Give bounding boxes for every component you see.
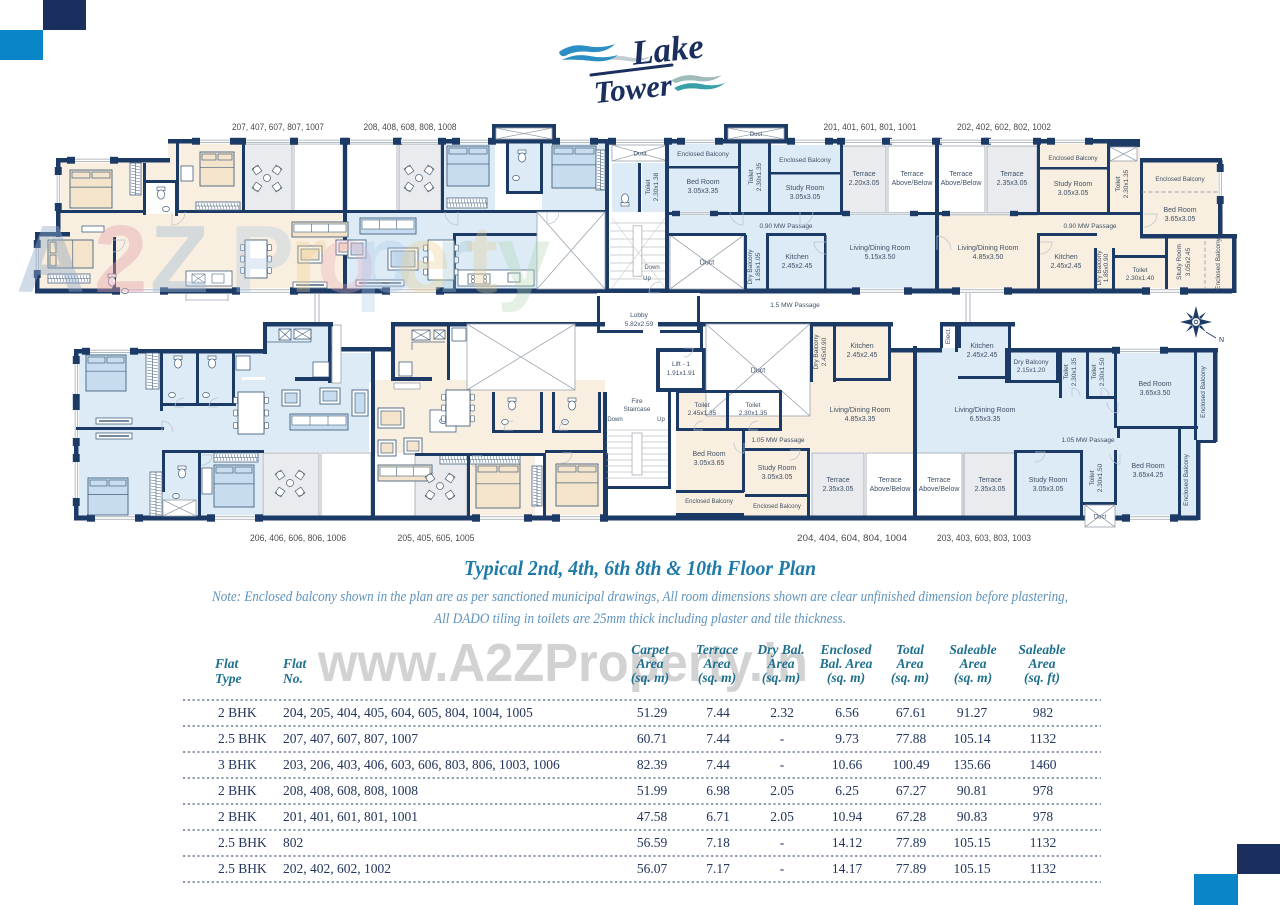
svg-text:6.55x3.35: 6.55x3.35	[970, 416, 1001, 423]
svg-text:Terrace: Terrace	[927, 477, 950, 484]
svg-text:Bed Room: Bed Room	[1138, 381, 1171, 388]
svg-text:(sq. m): (sq. m)	[891, 670, 929, 685]
svg-text:3 BHK: 3 BHK	[218, 757, 257, 772]
svg-text:Down: Down	[644, 265, 659, 271]
svg-text:-: -	[780, 731, 785, 746]
svg-text:Study Room: Study Room	[1029, 477, 1068, 484]
svg-text:Kitchen: Kitchen	[970, 343, 993, 350]
svg-text:Terrace: Terrace	[1000, 171, 1023, 178]
svg-text:Total: Total	[896, 642, 924, 657]
svg-text:Enclosed Balcony: Enclosed Balcony	[1048, 155, 1098, 162]
svg-text:Living/Dining Room: Living/Dining Room	[830, 407, 891, 414]
svg-text:Enclosed Balcony: Enclosed Balcony	[753, 504, 801, 510]
svg-text:-: -	[780, 835, 785, 850]
svg-text:105.14: 105.14	[953, 731, 990, 746]
svg-text:3.05x3.65: 3.05x3.65	[694, 460, 725, 467]
svg-text:Enclosed Balcony: Enclosed Balcony	[779, 157, 831, 164]
svg-text:Typical 2nd, 4th, 6th 8th & 10: Typical 2nd, 4th, 6th 8th & 10th Floor P…	[464, 556, 816, 580]
svg-text:10.66: 10.66	[832, 757, 863, 772]
svg-text:(sq. m): (sq. m)	[827, 670, 865, 685]
svg-text:2 BHK: 2 BHK	[218, 809, 257, 824]
svg-text:Enclosed Balcony: Enclosed Balcony	[1215, 237, 1222, 289]
svg-text:No.: No.	[282, 671, 303, 686]
svg-text:3.65x3.05: 3.65x3.05	[1165, 216, 1196, 223]
svg-text:Above/Below: Above/Below	[919, 486, 961, 493]
svg-text:6.56: 6.56	[835, 705, 859, 720]
svg-text:Toilet: Toilet	[1115, 176, 1122, 191]
svg-text:Bed Room: Bed Room	[692, 451, 725, 458]
svg-text:Tower: Tower	[592, 67, 674, 110]
svg-text:Toilet: Toilet	[745, 402, 760, 409]
svg-text:2.30x1.35: 2.30x1.35	[1123, 169, 1130, 198]
svg-text:2.35x3.05: 2.35x3.05	[997, 180, 1028, 187]
svg-text:2.45x0.90: 2.45x0.90	[821, 337, 828, 366]
svg-text:105.15: 105.15	[953, 835, 990, 850]
svg-text:Enclosed Balcony: Enclosed Balcony	[1183, 453, 1190, 505]
svg-text:82.39: 82.39	[637, 757, 668, 772]
svg-text:Above/Below: Above/Below	[870, 486, 912, 493]
svg-text:Down: Down	[607, 417, 622, 423]
svg-text:4.85x3.35: 4.85x3.35	[845, 416, 876, 423]
svg-text:7.44: 7.44	[706, 705, 730, 720]
svg-text:Lobby: Lobby	[630, 312, 648, 319]
svg-text:47.58: 47.58	[637, 809, 668, 824]
svg-text:Terrace: Terrace	[978, 477, 1001, 484]
svg-text:2.05: 2.05	[770, 783, 794, 798]
svg-text:Duct: Duct	[633, 151, 647, 158]
svg-text:978: 978	[1033, 809, 1054, 824]
svg-text:3.65x4.25: 3.65x4.25	[1133, 472, 1164, 479]
svg-text:Staircase: Staircase	[623, 406, 650, 413]
svg-text:6.25: 6.25	[835, 783, 859, 798]
svg-text:2.05: 2.05	[770, 809, 794, 824]
svg-text:Toilet: Toilet	[645, 179, 652, 194]
svg-text:3.05x3.35: 3.05x3.35	[688, 188, 719, 195]
svg-text:207, 407, 607, 807, 1007: 207, 407, 607, 807, 1007	[232, 122, 324, 132]
svg-text:2.30x1.35: 2.30x1.35	[756, 162, 763, 191]
svg-text:202, 402, 602, 802, 1002: 202, 402, 602, 802, 1002	[957, 122, 1051, 132]
svg-text:Terrace: Terrace	[878, 477, 901, 484]
svg-text:3.05x3.05: 3.05x3.05	[790, 194, 821, 201]
svg-text:7.44: 7.44	[706, 731, 730, 746]
svg-text:Terrace: Terrace	[949, 171, 972, 178]
svg-text:51.29: 51.29	[637, 705, 668, 720]
svg-text:6.98: 6.98	[706, 783, 730, 798]
svg-text:1.05 MW Passage: 1.05 MW Passage	[751, 437, 804, 444]
svg-text:0.90 MW Passage: 0.90 MW Passage	[1063, 223, 1116, 230]
svg-text:Kitchen: Kitchen	[785, 254, 808, 261]
svg-text:Study Room: Study Room	[786, 185, 825, 192]
svg-text:2.5 BHK: 2.5 BHK	[218, 835, 267, 850]
svg-text:Duct: Duct	[700, 260, 714, 267]
svg-text:105.15: 105.15	[953, 861, 990, 876]
svg-text:1.91x1.91: 1.91x1.91	[667, 370, 696, 377]
svg-text:7.17: 7.17	[706, 861, 730, 876]
svg-text:Duct: Duct	[751, 368, 765, 375]
svg-text:Dry Balcony: Dry Balcony	[747, 249, 754, 285]
svg-text:7.44: 7.44	[706, 757, 730, 772]
svg-text:Kitchen: Kitchen	[1054, 254, 1077, 261]
svg-text:Kitchen: Kitchen	[850, 343, 873, 350]
svg-text:91.27: 91.27	[957, 705, 988, 720]
svg-text:Area: Area	[1028, 656, 1056, 671]
svg-text:67.28: 67.28	[896, 809, 927, 824]
svg-text:Study Room: Study Room	[758, 465, 797, 472]
svg-text:Above/Below: Above/Below	[892, 180, 934, 187]
svg-text:Flat: Flat	[282, 656, 308, 671]
svg-text:14.12: 14.12	[832, 835, 862, 850]
svg-text:-: -	[780, 757, 785, 772]
svg-text:All DADO tiling in toilets are: All DADO tiling in toilets are 25mm thic…	[433, 611, 846, 627]
svg-text:6.71: 6.71	[706, 809, 730, 824]
svg-text:14.17: 14.17	[832, 861, 863, 876]
svg-text:Note: Enclosed balcony shown i: Note: Enclosed balcony shown in the plan…	[211, 589, 1068, 605]
svg-text:67.61: 67.61	[896, 705, 926, 720]
svg-text:1.85x0.90: 1.85x0.90	[1103, 253, 1110, 282]
svg-text:201, 401, 601, 801, 1001: 201, 401, 601, 801, 1001	[283, 809, 418, 824]
svg-text:Area: Area	[959, 656, 987, 671]
svg-text:Bed Room: Bed Room	[1131, 463, 1164, 470]
svg-text:Type: Type	[215, 671, 241, 686]
svg-text:(sq. m): (sq. m)	[954, 670, 992, 685]
svg-text:Bed Room: Bed Room	[686, 179, 719, 186]
svg-text:1132: 1132	[1030, 835, 1057, 850]
svg-text:1460: 1460	[1030, 757, 1057, 772]
svg-text:Enclosed: Enclosed	[819, 642, 871, 657]
svg-text:Enclosed Balcony: Enclosed Balcony	[1200, 365, 1207, 417]
svg-text:56.07: 56.07	[637, 861, 668, 876]
svg-text:2.45x2.45: 2.45x2.45	[847, 352, 878, 359]
svg-text:90.83: 90.83	[957, 809, 988, 824]
svg-text:Duct: Duct	[1094, 515, 1107, 521]
svg-text:Dry Balcony: Dry Balcony	[1096, 250, 1103, 286]
svg-text:Area: Area	[636, 656, 664, 671]
svg-text:Enclosed Balcony: Enclosed Balcony	[1155, 176, 1205, 183]
svg-text:2.15x1.20: 2.15x1.20	[1017, 367, 1046, 374]
svg-text:Flat: Flat	[214, 656, 240, 671]
svg-text:802: 802	[283, 835, 303, 850]
svg-text:Dry Bal.: Dry Bal.	[756, 642, 804, 657]
svg-text:4.85x3.50: 4.85x3.50	[973, 254, 1004, 261]
svg-text:Enclosed Balcony: Enclosed Balcony	[685, 499, 733, 505]
svg-text:3.05x3.05: 3.05x3.05	[1058, 190, 1089, 197]
svg-text:9.73: 9.73	[835, 731, 859, 746]
svg-text:A: A	[16, 206, 85, 313]
svg-text:Living/Dining Room: Living/Dining Room	[850, 245, 911, 252]
svg-text:2.30x1.35: 2.30x1.35	[739, 410, 768, 417]
svg-text:203, 206, 403, 406, 603, 606,: 203, 206, 403, 406, 603, 606, 803, 806, …	[283, 757, 560, 772]
svg-text:3.05x3.05: 3.05x3.05	[1033, 486, 1064, 493]
svg-text:Enclosed Balcony: Enclosed Balcony	[677, 151, 729, 158]
svg-text:Area: Area	[767, 656, 795, 671]
svg-text:207, 407, 607, 807, 1007: 207, 407, 607, 807, 1007	[283, 731, 418, 746]
svg-text:2 BHK: 2 BHK	[218, 783, 257, 798]
svg-text:Up: Up	[657, 417, 665, 423]
svg-text:203, 403, 603, 803, 1003: 203, 403, 603, 803, 1003	[937, 533, 1031, 543]
svg-text:1132: 1132	[1030, 731, 1057, 746]
svg-text:5.15x3.50: 5.15x3.50	[865, 254, 896, 261]
svg-text:Saleable: Saleable	[1018, 642, 1065, 657]
svg-text:Toilet: Toilet	[1089, 470, 1096, 485]
svg-text:100.49: 100.49	[892, 757, 929, 772]
svg-text:Above/Below: Above/Below	[941, 180, 983, 187]
svg-text:2 BHK: 2 BHK	[218, 705, 257, 720]
svg-text:204, 404, 604, 804, 1004: 204, 404, 604, 804, 1004	[797, 533, 907, 543]
svg-text:Lift - 1: Lift - 1	[672, 361, 690, 368]
svg-text:208, 408, 608, 808, 1008: 208, 408, 608, 808, 1008	[283, 783, 418, 798]
svg-text:Terrace: Terrace	[696, 642, 738, 657]
svg-text:206, 406, 606, 806, 1006: 206, 406, 606, 806, 1006	[250, 533, 346, 543]
svg-text:56.59: 56.59	[637, 835, 668, 850]
svg-text:Living/Dining Room: Living/Dining Room	[955, 407, 1016, 414]
svg-text:2.30x1.40: 2.30x1.40	[1126, 275, 1155, 282]
svg-text:7.18: 7.18	[706, 835, 730, 850]
svg-text:Living/Dining Room: Living/Dining Room	[958, 245, 1019, 252]
svg-text:205, 405, 605, 1005: 205, 405, 605, 1005	[398, 533, 475, 543]
svg-text:67.27: 67.27	[896, 783, 927, 798]
svg-text:Saleable: Saleable	[949, 642, 996, 657]
svg-text:77.89: 77.89	[896, 835, 927, 850]
svg-text:(sq. m): (sq. m)	[631, 670, 669, 685]
svg-text:90.81: 90.81	[957, 783, 987, 798]
svg-text:Z: Z	[150, 206, 209, 313]
svg-text:201, 401, 601, 801, 1001: 201, 401, 601, 801, 1001	[824, 122, 917, 132]
svg-text:982: 982	[1033, 705, 1053, 720]
svg-text:(sq. ft): (sq. ft)	[1024, 670, 1060, 685]
svg-text:2.5 BHK: 2.5 BHK	[218, 731, 267, 746]
svg-text:2.30x1.38: 2.30x1.38	[653, 172, 660, 201]
svg-text:Toilet: Toilet	[1091, 364, 1098, 379]
svg-text:2.32: 2.32	[770, 705, 794, 720]
svg-text:2.35x3.05: 2.35x3.05	[823, 486, 854, 493]
svg-text:2.20x3.05: 2.20x3.05	[849, 180, 880, 187]
svg-text:N: N	[1219, 337, 1224, 344]
svg-text:Area: Area	[703, 656, 731, 671]
svg-text:1.85x1.05: 1.85x1.05	[755, 252, 762, 281]
svg-text:2.45x1.35: 2.45x1.35	[688, 410, 717, 417]
svg-text:1132: 1132	[1030, 861, 1057, 876]
svg-text:5.82x2.59: 5.82x2.59	[625, 321, 654, 328]
svg-text:3.05x2.45: 3.05x2.45	[1185, 247, 1192, 276]
svg-text:Duct: Duct	[750, 132, 763, 138]
svg-text:51.99: 51.99	[637, 783, 668, 798]
svg-text:Fire: Fire	[631, 398, 643, 405]
svg-text:204, 205, 404, 405, 604, 605,: 204, 205, 404, 405, 604, 605, 804, 1004,…	[283, 705, 533, 720]
svg-text:2.45x2.45: 2.45x2.45	[967, 352, 998, 359]
svg-text:Terrace: Terrace	[826, 477, 849, 484]
svg-text:Toilet: Toilet	[694, 402, 709, 409]
svg-text:Bed Room: Bed Room	[1163, 207, 1196, 214]
svg-text:(sq. m): (sq. m)	[762, 670, 800, 685]
svg-text:2.30x1.50: 2.30x1.50	[1099, 357, 1106, 386]
svg-text:2.30x1.35: 2.30x1.35	[1071, 357, 1078, 386]
svg-text:77.89: 77.89	[896, 861, 927, 876]
svg-text:2: 2	[94, 206, 147, 313]
svg-text:Dry Balcony: Dry Balcony	[1013, 359, 1049, 366]
svg-text:Toilet: Toilet	[1063, 364, 1070, 379]
svg-text:77.88: 77.88	[896, 731, 927, 746]
svg-text:(sq. m): (sq. m)	[698, 670, 736, 685]
svg-text:2.45x2.45: 2.45x2.45	[782, 263, 813, 270]
svg-text:10.94: 10.94	[832, 809, 863, 824]
svg-text:Study Room: Study Room	[1176, 244, 1183, 280]
svg-text:60.71: 60.71	[637, 731, 667, 746]
svg-text:135.66: 135.66	[953, 757, 990, 772]
svg-text:3.05x3.05: 3.05x3.05	[762, 474, 793, 481]
svg-text:Terrace: Terrace	[900, 171, 923, 178]
svg-text:Dry Balcony: Dry Balcony	[813, 334, 820, 370]
svg-text:Terrace: Terrace	[852, 171, 875, 178]
svg-text:y: y	[497, 206, 550, 313]
svg-text:Toilet: Toilet	[1132, 267, 1147, 274]
svg-text:2.45x2.45: 2.45x2.45	[1051, 263, 1082, 270]
svg-text:Up: Up	[643, 276, 651, 282]
svg-text:978: 978	[1033, 783, 1054, 798]
svg-text:-: -	[780, 861, 785, 876]
svg-text:2.30x1.50: 2.30x1.50	[1097, 463, 1104, 492]
svg-text:208, 408, 608, 808, 1008: 208, 408, 608, 808, 1008	[364, 122, 457, 132]
svg-text:2.35x3.05: 2.35x3.05	[975, 486, 1006, 493]
svg-text:1.5 MW Passage: 1.5 MW Passage	[770, 302, 820, 309]
svg-text:2.5 BHK: 2.5 BHK	[218, 861, 267, 876]
svg-text:Elect.: Elect.	[945, 328, 952, 344]
svg-text:3.65x3.50: 3.65x3.50	[1140, 390, 1171, 397]
svg-text:Carpet: Carpet	[631, 642, 670, 657]
svg-text:P: P	[230, 206, 294, 313]
svg-text:202, 402, 602, 1002: 202, 402, 602, 1002	[283, 861, 391, 876]
svg-text:Study Room: Study Room	[1054, 181, 1093, 188]
svg-text:Toilet: Toilet	[748, 169, 755, 184]
svg-text:Area: Area	[896, 656, 924, 671]
svg-text:1.05 MW Passage: 1.05 MW Passage	[1061, 437, 1114, 444]
svg-text:Bal. Area: Bal. Area	[819, 656, 873, 671]
svg-text:t: t	[466, 206, 498, 313]
